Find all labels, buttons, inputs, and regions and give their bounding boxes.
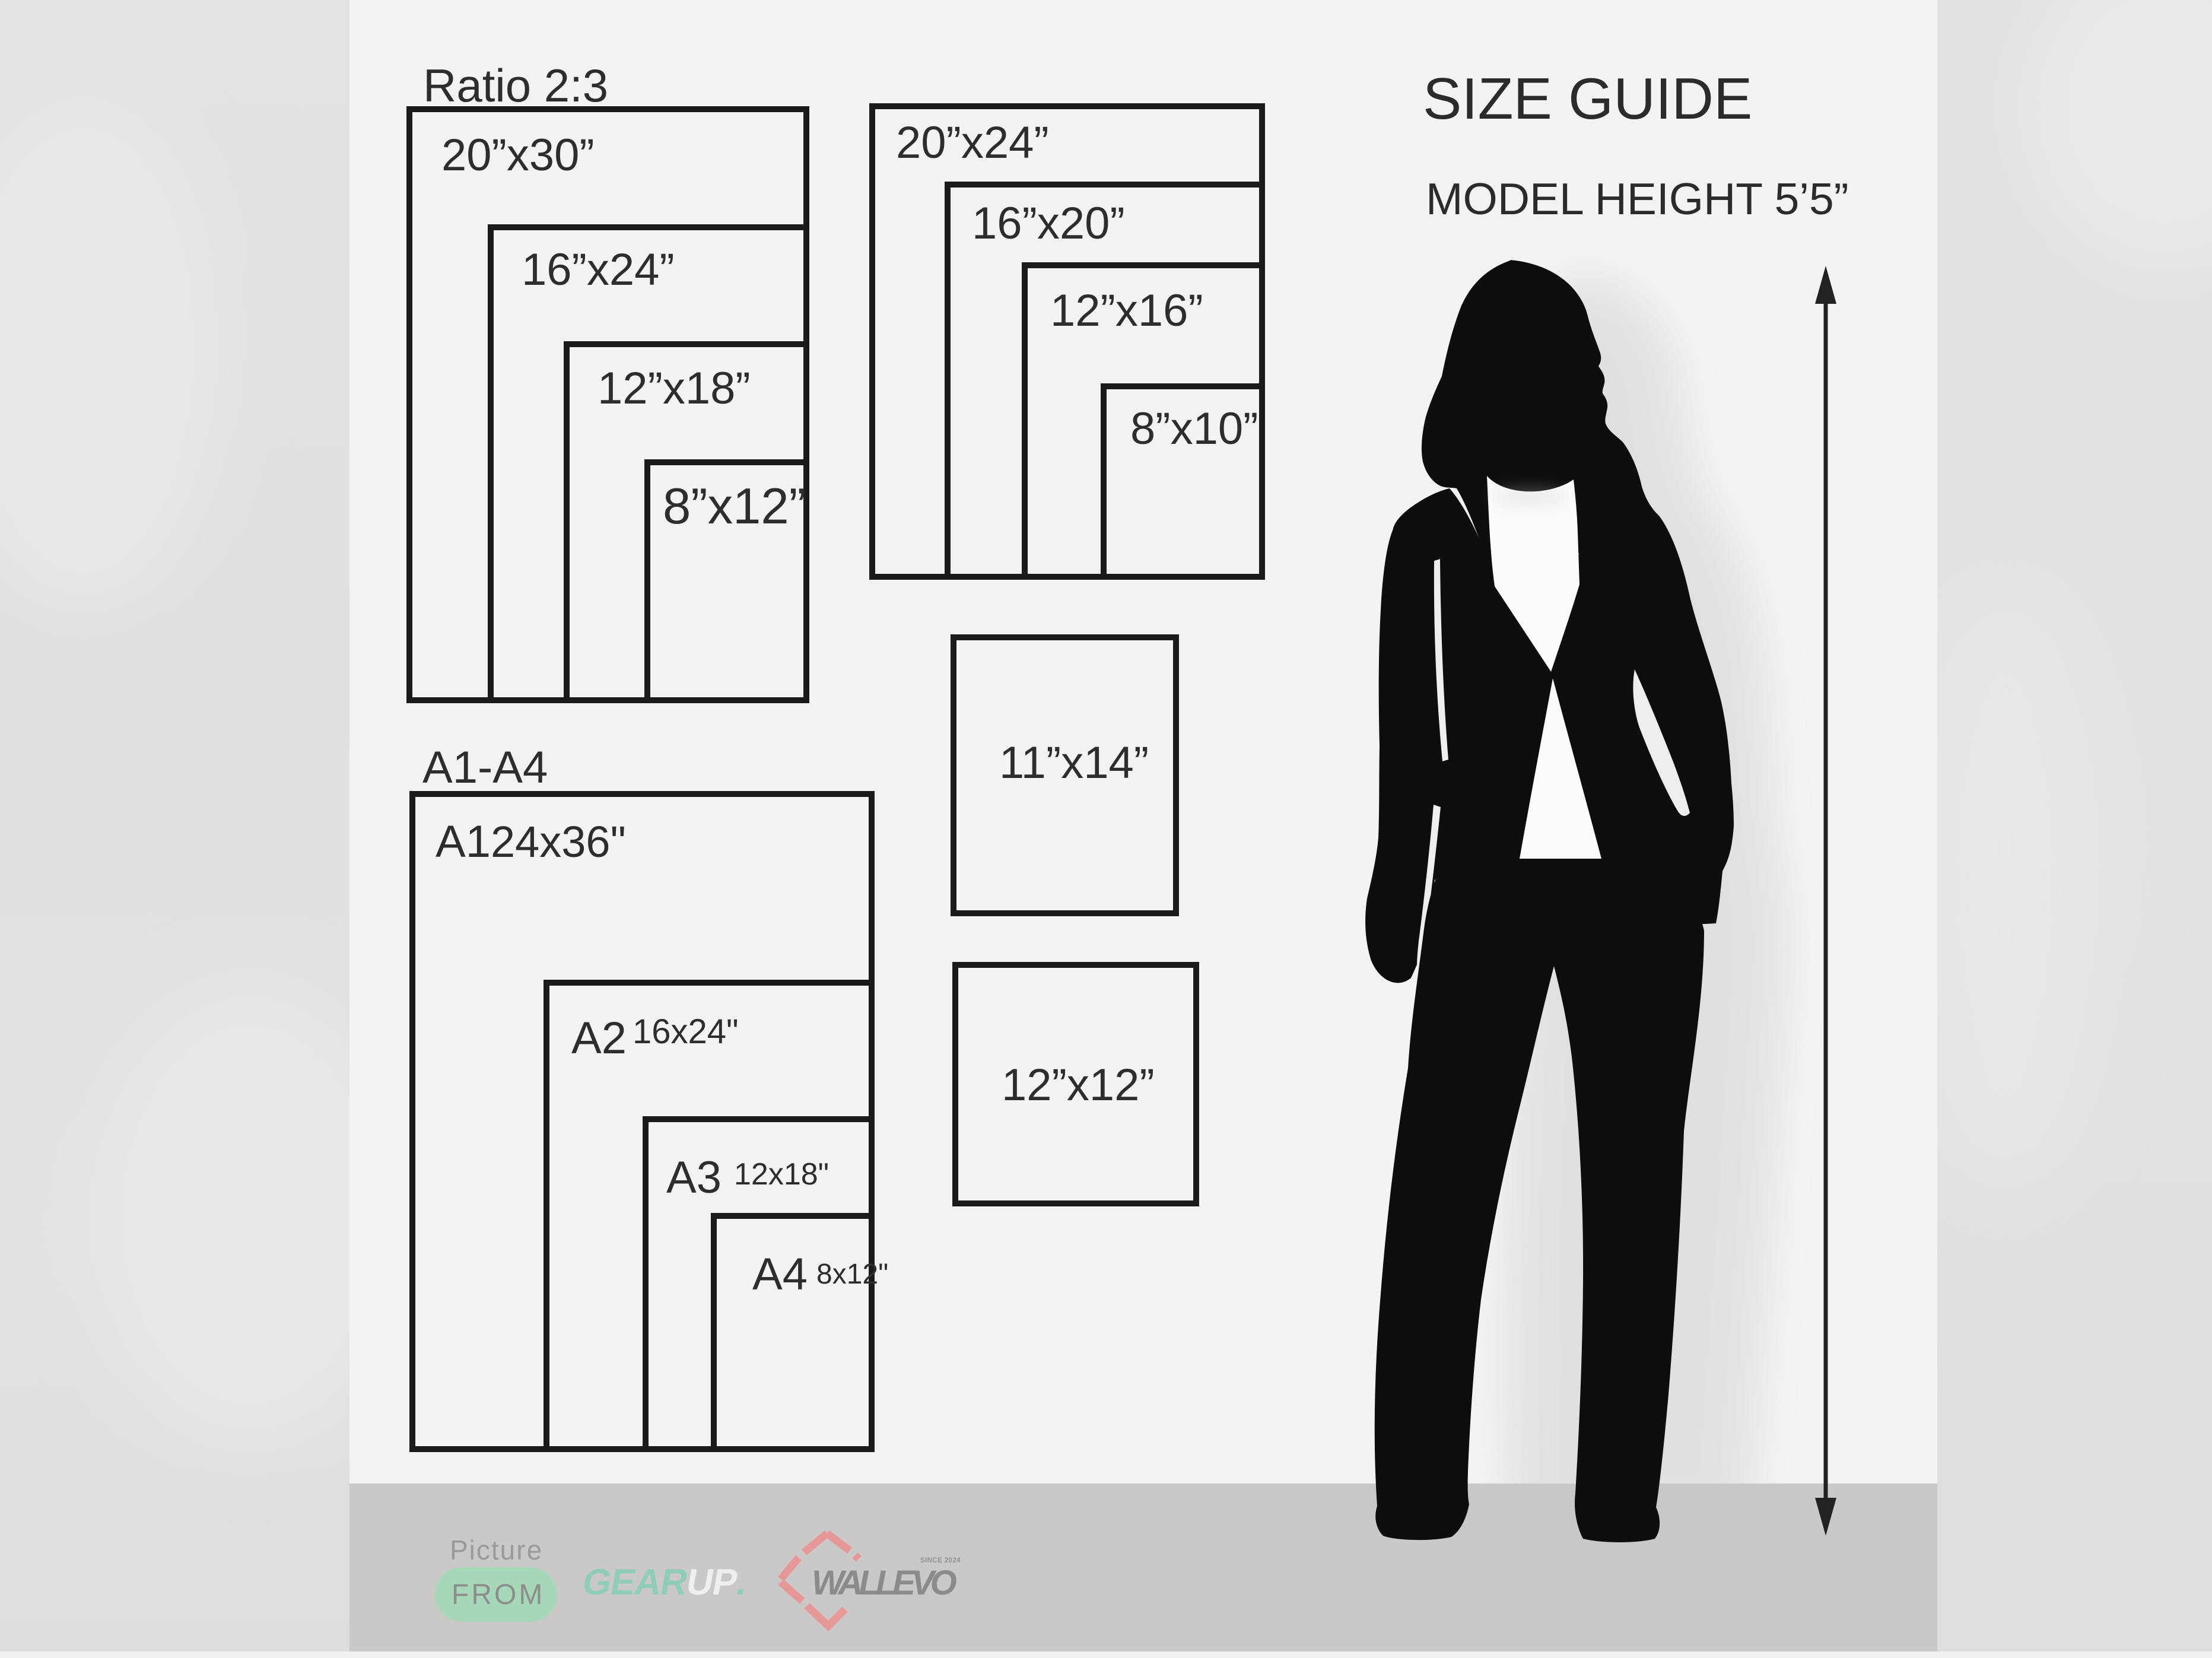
svg-text:A2: A2: [571, 1013, 627, 1063]
svg-text:SIZE GUIDE: SIZE GUIDE: [1423, 66, 1752, 131]
svg-text:8x12": 8x12": [816, 1259, 888, 1290]
svg-text:A124x36": A124x36": [436, 817, 626, 867]
svg-text:SINCE 2024: SINCE 2024: [920, 1557, 961, 1564]
svg-text:8”x10”: 8”x10”: [1130, 404, 1258, 454]
svg-text:12”x16”: 12”x16”: [1050, 285, 1203, 336]
svg-text:FROM: FROM: [452, 1579, 545, 1611]
svg-text:16x24": 16x24": [633, 1012, 739, 1051]
svg-text:12”x18”: 12”x18”: [598, 363, 751, 414]
svg-text:MODEL HEIGHT 5’5”: MODEL HEIGHT 5’5”: [1426, 174, 1849, 224]
svg-text:Ratio 2:3: Ratio 2:3: [423, 59, 608, 112]
svg-text:12”x12”: 12”x12”: [1002, 1060, 1155, 1110]
svg-text:A3: A3: [666, 1152, 722, 1203]
svg-text:WALLEVO: WALLEVO: [812, 1564, 957, 1602]
svg-text:8”x12”: 8”x12”: [663, 478, 806, 535]
svg-text:Picture: Picture: [450, 1535, 543, 1565]
svg-text:12x18": 12x18": [734, 1157, 829, 1192]
svg-text:GEARUP.: GEARUP.: [580, 1561, 751, 1602]
svg-text:20”x24”: 20”x24”: [896, 117, 1049, 168]
svg-text:A1-A4: A1-A4: [422, 742, 548, 793]
svg-text:20”x30”: 20”x30”: [441, 130, 595, 180]
svg-text:11”x14”: 11”x14”: [999, 738, 1149, 788]
svg-text:16”x20”: 16”x20”: [972, 198, 1125, 249]
svg-text:A4: A4: [752, 1249, 808, 1300]
svg-text:16”x24”: 16”x24”: [522, 244, 675, 295]
